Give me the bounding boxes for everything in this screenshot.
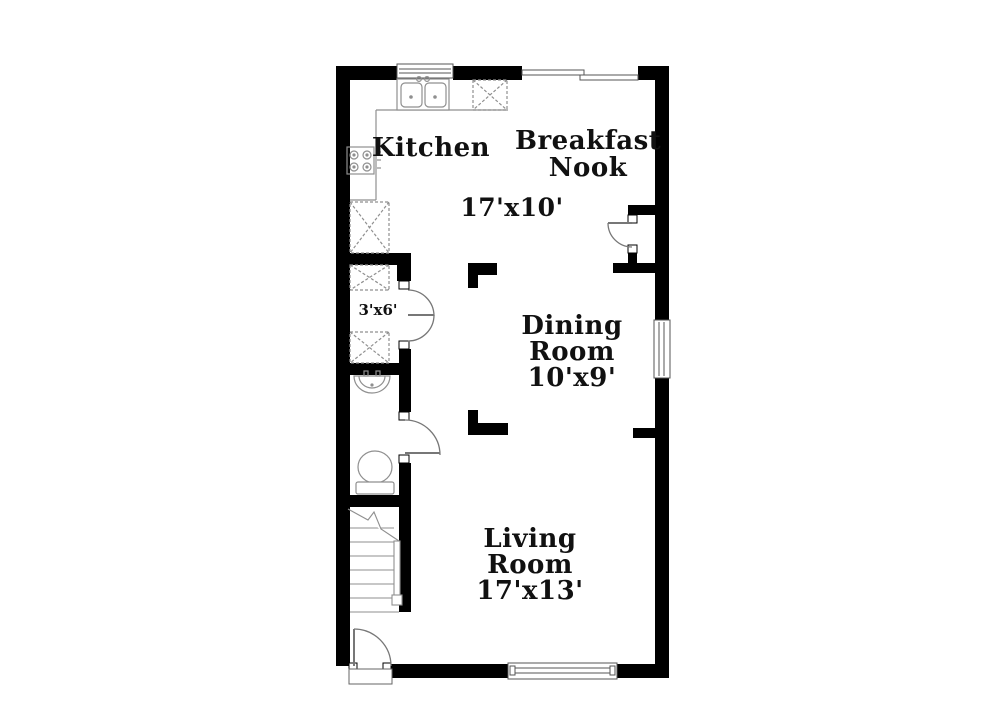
closet-double-doors <box>408 290 434 341</box>
wall-closet-bath <box>350 363 399 375</box>
floor-plan: Kitchen Breakfast Nook 17'x10' Dining Ro… <box>0 0 1000 727</box>
window-living <box>508 663 617 679</box>
jamb-closet-top <box>399 281 409 289</box>
closet-dimensions: 3'x6' <box>348 303 408 318</box>
stub-dining-bottomright <box>633 428 655 438</box>
living-room-label: Living Room 17'x13' <box>460 526 600 604</box>
jamb-nook-bottom <box>628 245 637 253</box>
kitchen-fixtures <box>347 77 508 253</box>
window-kitchen <box>397 64 453 78</box>
closet-shelf-upper-icon <box>350 265 389 290</box>
wall-top-mid <box>453 66 522 80</box>
stub-nook-door-bottom <box>613 263 655 273</box>
stair-newel-post <box>392 595 402 605</box>
kitchen-name: Kitchen <box>372 133 490 163</box>
dining-room-name-line2: Room <box>512 339 632 365</box>
staircase-icon <box>348 509 402 612</box>
pantry-cabinet-icon <box>350 202 389 253</box>
dining-room-name-line1: Dining <box>512 313 632 339</box>
jamb-nook-top <box>628 215 637 223</box>
stub-nook-door-top <box>628 205 655 215</box>
floor-plan-drawing <box>0 0 1000 727</box>
stub-dining-bottomleft-h <box>468 423 508 435</box>
jamb-bath-top <box>399 412 409 420</box>
jamb-bath-bottom <box>399 455 409 463</box>
bathroom-door <box>405 420 440 455</box>
bathroom-fixtures <box>354 371 394 494</box>
breakfast-nook-name-line2: Nook <box>515 155 661 182</box>
dishwasher-icon <box>473 80 507 110</box>
entry-threshold <box>349 669 392 684</box>
stub-dining-topleft-v <box>468 263 478 288</box>
door-jambs <box>349 215 637 684</box>
wall-bottom-left <box>391 664 508 678</box>
wall-bottom-right <box>617 664 669 678</box>
toilet-icon <box>356 451 394 494</box>
breakfast-nook-name-line1: Breakfast <box>515 128 661 155</box>
kitchen-label: Kitchen <box>371 135 491 161</box>
dining-room-label: Dining Room 10'x9' <box>512 313 632 391</box>
jamb-closet-bottom <box>399 341 409 349</box>
double-basin-sink-icon <box>397 77 449 110</box>
closet-shelf-lower-icon <box>350 332 389 363</box>
wall-left <box>336 66 350 666</box>
wall-bath-stairs <box>340 495 399 507</box>
breakfast-nook-label: Breakfast Nook <box>515 128 661 182</box>
entry-door <box>354 629 391 666</box>
nook-door <box>608 223 632 247</box>
sliding-glass-door <box>522 70 638 80</box>
living-room-name-line1: Living <box>460 526 600 552</box>
stair-handrail <box>394 541 400 597</box>
wall-closet-right-top <box>397 253 411 281</box>
window-dining <box>654 320 670 378</box>
dining-room-dimensions: 10'x9' <box>512 365 632 391</box>
kitchen-nook-dimensions: 17'x10' <box>452 195 572 220</box>
stub-nook-door-mid <box>628 253 637 263</box>
stair-break-line <box>348 509 399 541</box>
wall-closet-right-mid <box>399 349 411 412</box>
living-room-dimensions: 17'x13' <box>460 578 600 604</box>
living-room-name-line2: Room <box>460 552 600 578</box>
wall-hall-lower <box>399 463 411 612</box>
